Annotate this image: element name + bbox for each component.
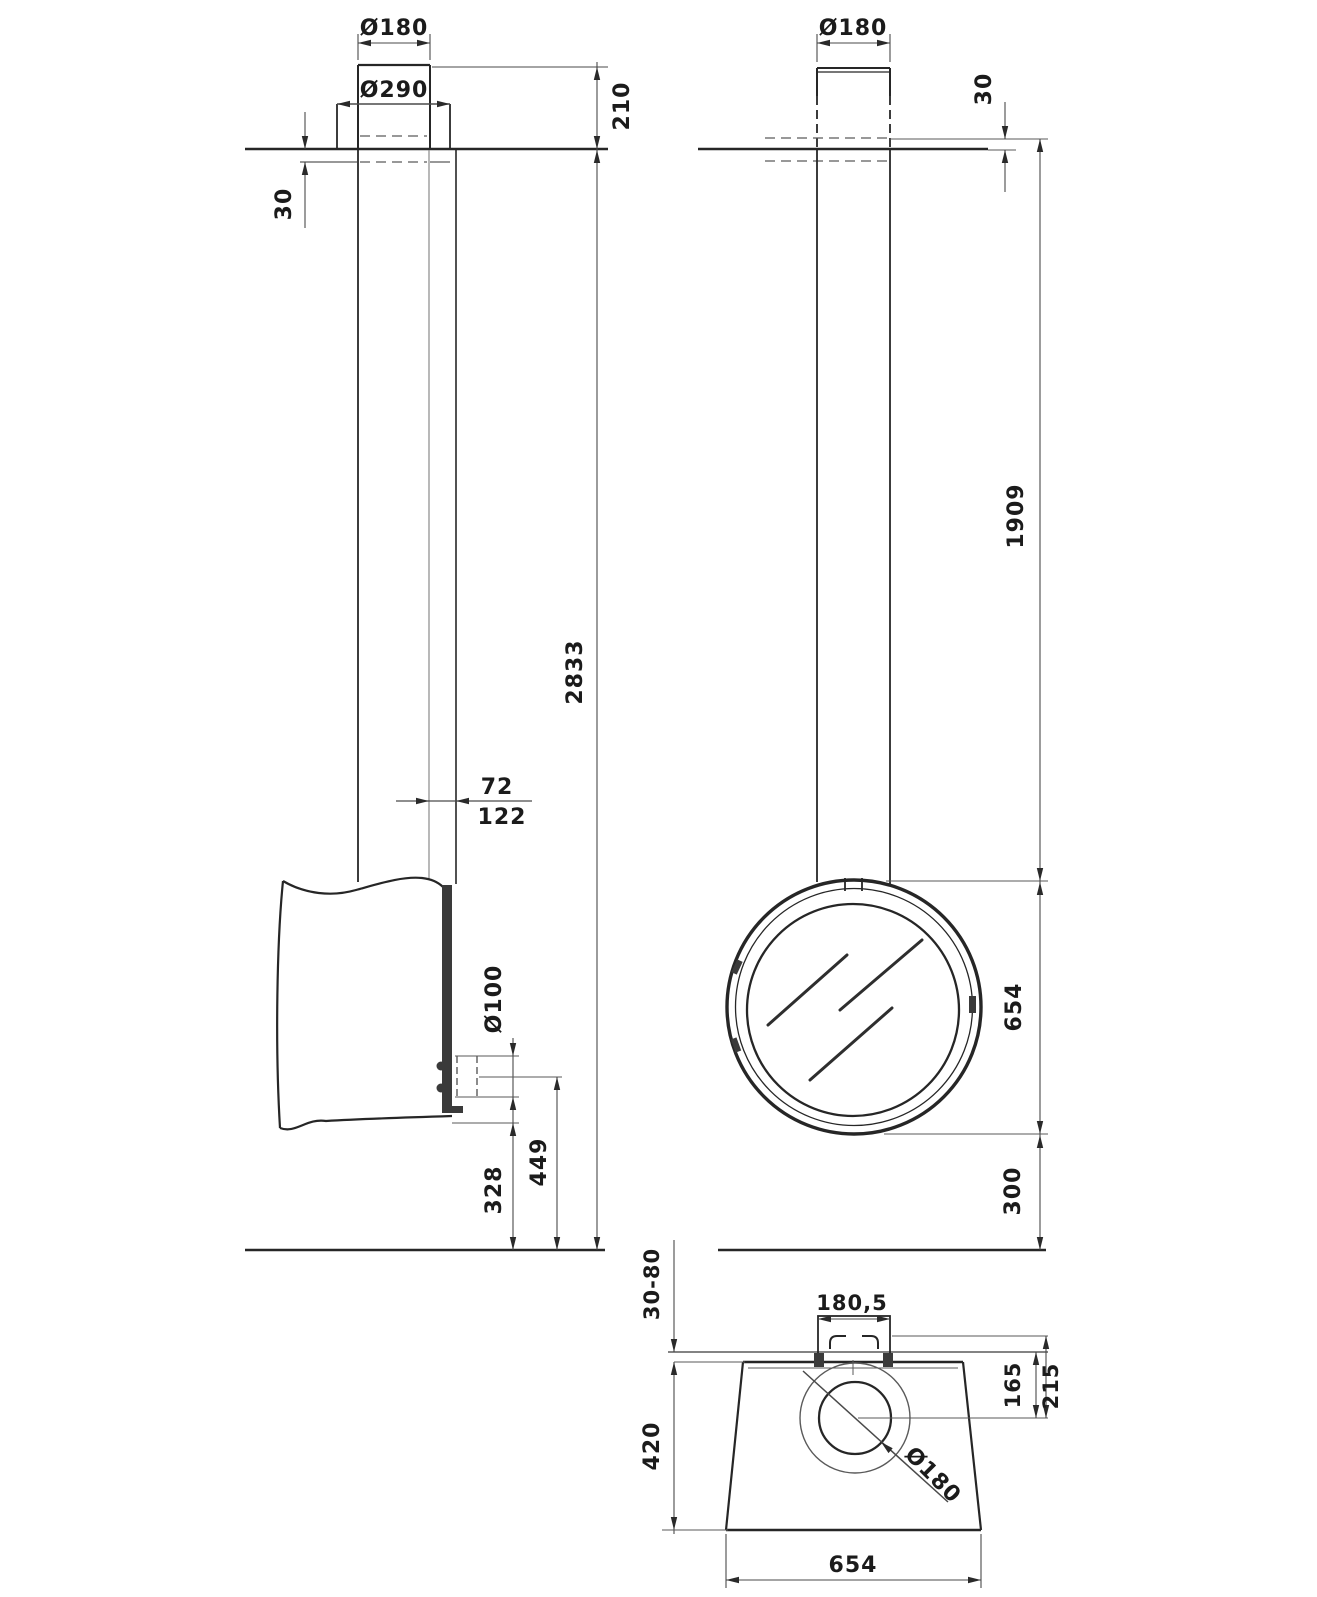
side-body-left-edge: [277, 881, 283, 1128]
plate-hole-corner-right: [862, 1336, 878, 1349]
technical-drawing-page: Ø180 Ø290 30 210 2833 72 122: [0, 0, 1317, 1597]
plate-bracket-box: [818, 1316, 890, 1362]
plate-bolt-right: [883, 1353, 893, 1367]
dim-front-plate-thickness: 30: [972, 73, 997, 106]
dim-front-flue-length: 1909: [1004, 483, 1029, 548]
front-view: Ø180 30 1909 654 300: [698, 16, 1048, 1250]
dim-side-above-ceiling-height: 210: [610, 82, 635, 131]
dim-plate-adjust-range: 30-80: [640, 1248, 664, 1320]
dim-plate-base-width: 654: [829, 1553, 878, 1578]
side-hinge-upper: [437, 1062, 446, 1071]
dim-side-collar-below-ceiling: 30: [272, 188, 297, 221]
side-glass-bar: [442, 885, 452, 1107]
plate-bolt-left: [814, 1353, 824, 1367]
front-body-inner-rim: [736, 889, 973, 1126]
dim-side-offset-front: 72: [481, 775, 514, 800]
dim-side-offset-back: 122: [478, 805, 527, 830]
dim-side-gas-height: 449: [527, 1138, 552, 1187]
front-latch-right: [969, 996, 976, 1013]
dim-plate-center-offset-1: 165: [1001, 1362, 1025, 1409]
drawing-canvas: Ø180 Ø290 30 210 2833 72 122: [0, 0, 1317, 1597]
dim-front-body-diameter: 654: [1002, 983, 1027, 1032]
front-glass-circle: [747, 904, 959, 1116]
side-hinge-lower: [437, 1084, 446, 1093]
dim-plate-bracket-width: 180,5: [816, 1291, 887, 1315]
dim-front-flue-diameter: Ø180: [819, 16, 888, 41]
side-glass-bracket-foot: [442, 1106, 463, 1113]
front-body-outer-ring: [727, 880, 981, 1134]
ceiling-plate-view: Ø180 30-80 420 180,5 165 215 654: [640, 1240, 1063, 1588]
dim-side-gas-diameter: Ø100: [482, 965, 507, 1034]
plate-left-edge: [726, 1362, 743, 1530]
dim-side-total-height: 2833: [563, 639, 588, 704]
dim-plate-center-offset-2: 215: [1039, 1363, 1063, 1410]
front-glass-reflections: [768, 940, 922, 1080]
dim-front-floor-clearance: 300: [1001, 1167, 1026, 1216]
dim-side-body-bottom-height: 328: [482, 1166, 507, 1215]
side-body-top-edge: [283, 878, 443, 894]
side-view: Ø180 Ø290 30 210 2833 72 122: [245, 16, 635, 1250]
dim-plate-depth: 420: [640, 1422, 665, 1471]
dim-side-collar-diameter: Ø290: [360, 78, 429, 103]
plate-right-edge: [963, 1362, 981, 1530]
plate-hole-corner-left: [830, 1336, 846, 1349]
side-body-bottom-edge: [280, 1116, 452, 1129]
dim-plate-hole-diameter: Ø180: [899, 1442, 965, 1508]
dim-side-flue-diameter: Ø180: [360, 16, 429, 41]
